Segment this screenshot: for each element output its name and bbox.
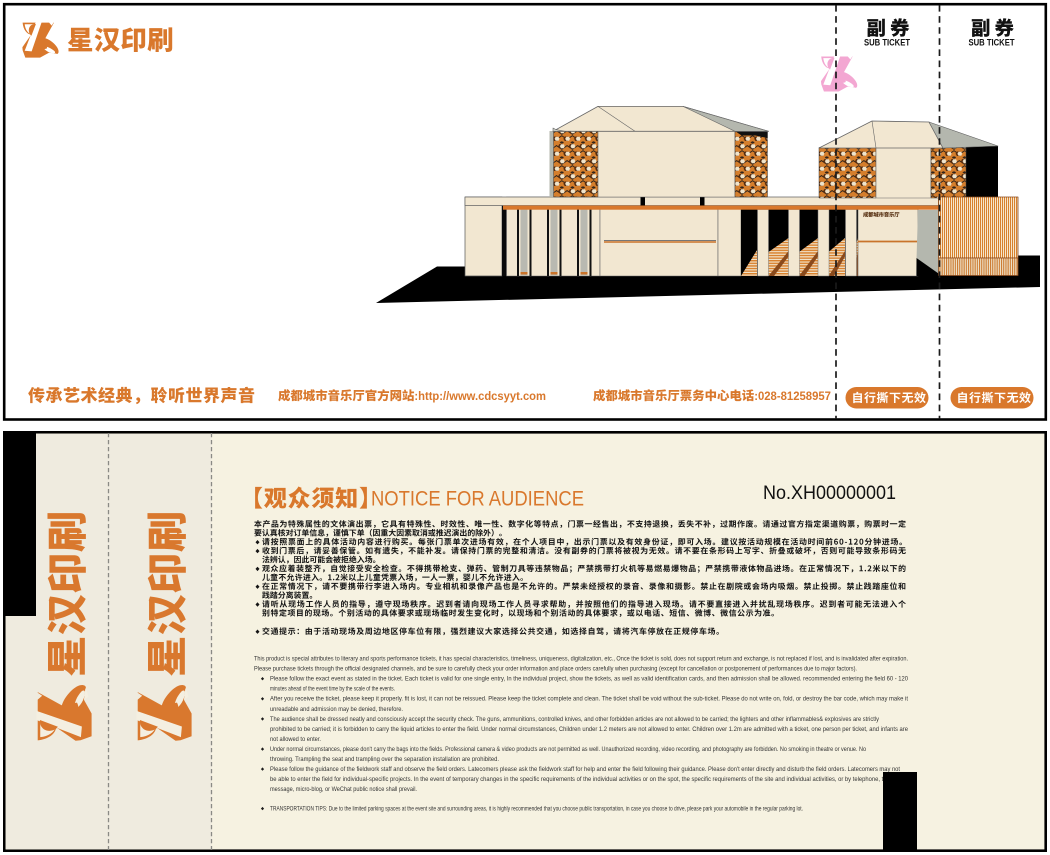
svg-text:Please follow the exact event: Please follow the exact event as stated … [270,677,909,683]
svg-text:Please follow the guidance of: Please follow the guidance of the fieldw… [270,767,900,773]
svg-text:SUB TICKET: SUB TICKET [864,38,910,49]
svg-text:be able to enter the field for: be able to enter the field for individua… [270,777,891,783]
svg-text:After you receive the ticket,: After you receive the ticket, please kee… [270,697,908,703]
svg-text:message, micro-blog, or WeChat: message, micro-blog, or WeChat public no… [270,787,417,793]
svg-text:This product is special attrib: This product is special attributes to li… [254,657,908,663]
svg-text:prohibited to be carried; it i: prohibited to be carried; it is forbidde… [270,727,909,733]
svg-text::http://www.cdcsyyt.com: :http://www.cdcsyyt.com [414,389,546,403]
svg-text:not allowed to enter.: not allowed to enter. [270,737,321,743]
svg-text:Under normal circumstances, pl: Under normal circumstances, please don't… [270,747,867,753]
svg-text:minutes ahead of the event tim: minutes ahead of the event time by the s… [270,687,395,693]
svg-text:No.XH00000001: No.XH00000001 [763,482,896,504]
svg-text:NOTICE FOR AUDIENCE: NOTICE FOR AUDIENCE [371,487,584,511]
svg-text:throwing. Trampling the seat a: throwing. Trampling the seat and trampli… [270,757,499,763]
svg-text:Please purchase tickets throug: Please purchase tickets through the offi… [254,667,857,673]
svg-text::028-81258957: :028-81258957 [754,389,831,403]
svg-text:unreadable and admission may b: unreadable and admission may be denied, … [270,707,403,713]
svg-text:TRANSPORTATION TIPS: Due to th: TRANSPORTATION TIPS: Due to the limited … [270,807,803,813]
svg-text:The audience shall be dressed: The audience shall be dressed neatly and… [270,717,879,723]
svg-text:SUB TICKET: SUB TICKET [969,38,1015,49]
